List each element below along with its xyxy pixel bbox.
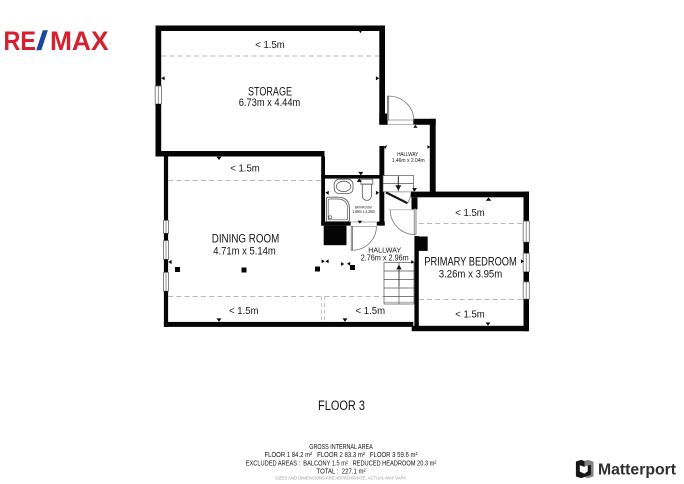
svg-text:< 1.5m: < 1.5m <box>455 309 485 321</box>
svg-text:6.73m x 4.44m: 6.73m x 4.44m <box>239 97 301 109</box>
svg-text:2.76m x 2.96m: 2.76m x 2.96m <box>361 254 409 263</box>
svg-text:DINING ROOM: DINING ROOM <box>212 232 280 246</box>
svg-text:< 1.5m: < 1.5m <box>356 305 386 317</box>
svg-text:4.71m x 5.14m: 4.71m x 5.14m <box>213 246 276 258</box>
svg-text:< 1.5m: < 1.5m <box>229 305 259 317</box>
svg-text:FLOOR 1 84.2 m² FLOOR 2 83.3: FLOOR 1 84.2 m² FLOOR 2 83.3 m² FLOOR 3 … <box>265 452 419 459</box>
svg-text:EXCLUDED AREAS : BALCONY 1.5: EXCLUDED AREAS : BALCONY 1.5 m² REDUCED … <box>246 460 437 467</box>
svg-text:RE: RE <box>4 26 37 56</box>
svg-text:Matterport: Matterport <box>598 461 676 478</box>
svg-text:FLOOR 3: FLOOR 3 <box>318 398 365 413</box>
svg-text:SIZES AND DIMENSIONS ARE APPRO: SIZES AND DIMENSIONS ARE APPROXIMATE, AC… <box>275 476 407 482</box>
svg-text:1.69m x 1.26m: 1.69m x 1.26m <box>352 209 375 214</box>
svg-text:1.46m x 2.04m: 1.46m x 2.04m <box>392 158 425 164</box>
svg-text:PRIMARY BEDROOM: PRIMARY BEDROOM <box>424 255 517 269</box>
svg-text:MAX: MAX <box>50 26 109 56</box>
svg-text:TOTAL : 227.1 m²: TOTAL : 227.1 m² <box>317 469 367 476</box>
svg-text:GROSS INTERNAL AREA: GROSS INTERNAL AREA <box>309 444 373 451</box>
svg-text:< 1.5m: < 1.5m <box>230 163 260 175</box>
svg-text:< 1.5m: < 1.5m <box>255 39 285 51</box>
svg-text:3.26m x 3.95m: 3.26m x 3.95m <box>439 269 503 281</box>
svg-text:< 1.5m: < 1.5m <box>455 207 485 219</box>
